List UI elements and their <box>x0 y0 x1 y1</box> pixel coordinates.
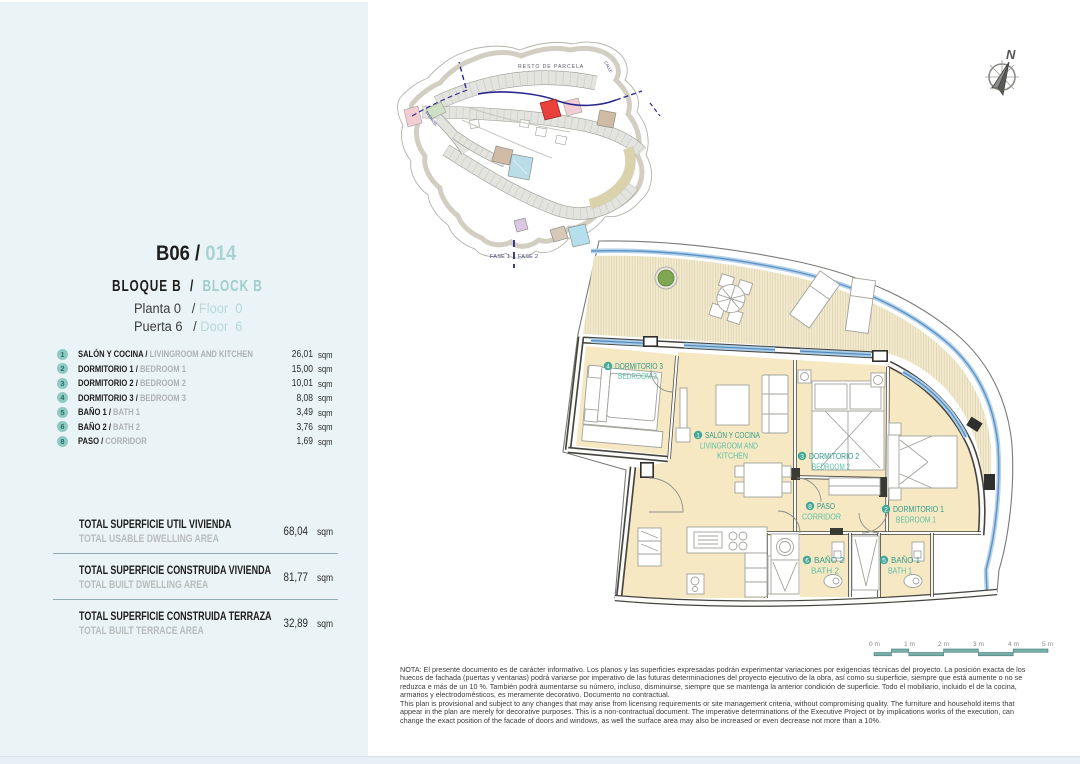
svg-text:DORMITORIO 1: DORMITORIO 1 <box>893 505 944 514</box>
svg-text:5 m: 5 m <box>1042 641 1053 648</box>
svg-text:DORMITORIO 2: DORMITORIO 2 <box>809 452 859 461</box>
svg-text:BAÑO 1: BAÑO 1 <box>891 556 920 565</box>
svg-text:BAÑO 2: BAÑO 2 <box>814 556 844 565</box>
svg-text:2 m: 2 m <box>938 641 949 648</box>
svg-text:DORMITORIO 3: DORMITORIO 3 <box>615 362 663 371</box>
svg-text:N: N <box>1006 47 1016 62</box>
svg-text:BATH 2: BATH 2 <box>811 567 839 576</box>
svg-text:PASO: PASO <box>817 502 835 511</box>
svg-text:BEDROOM 2: BEDROOM 2 <box>812 463 850 472</box>
svg-text:8: 8 <box>808 504 812 511</box>
svg-text:3: 3 <box>800 454 804 461</box>
svg-text:4 m: 4 m <box>1008 641 1019 648</box>
svg-text:6: 6 <box>805 558 809 565</box>
svg-text:1 m: 1 m <box>904 641 915 648</box>
svg-text:SALÓN Y COCINA: SALÓN Y COCINA <box>705 431 761 440</box>
svg-text:5: 5 <box>882 558 886 565</box>
svg-text:RESTO DE PARCELA: RESTO DE PARCELA <box>518 64 584 70</box>
svg-text:LIVINGROOM AND: LIVINGROOM AND <box>700 442 758 451</box>
svg-text:KITCHEN: KITCHEN <box>717 452 748 461</box>
svg-text:3 m: 3 m <box>973 641 984 648</box>
svg-text:0 m: 0 m <box>869 641 880 648</box>
svg-text:1: 1 <box>696 433 700 440</box>
svg-text:4: 4 <box>606 364 610 371</box>
svg-text:BEDROOM 1: BEDROOM 1 <box>896 516 936 525</box>
svg-text:FASE 2: FASE 2 <box>518 254 538 260</box>
svg-text:CORRIDOR: CORRIDOR <box>802 513 841 522</box>
svg-text:FASE 1: FASE 1 <box>490 254 510 260</box>
svg-text:BATH 1: BATH 1 <box>888 567 912 576</box>
svg-text:BEDROOM 3: BEDROOM 3 <box>618 372 657 381</box>
svg-text:2: 2 <box>884 507 888 514</box>
